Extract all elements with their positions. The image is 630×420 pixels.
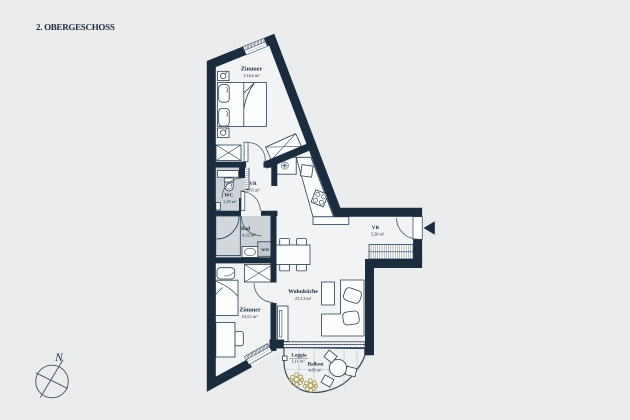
svg-text:4,32 m²: 4,32 m²: [242, 233, 256, 238]
svg-text:1,11 m²: 1,11 m²: [291, 359, 305, 364]
svg-text:N: N: [54, 352, 64, 364]
svg-text:13,64 m²: 13,64 m²: [243, 73, 260, 78]
svg-text:Bad: Bad: [241, 226, 250, 232]
svg-text:10,52 m²: 10,52 m²: [241, 314, 258, 319]
svg-text:25,13 m²: 25,13 m²: [295, 296, 312, 301]
svg-text:Zimmer: Zimmer: [241, 66, 263, 73]
svg-text:2,65 m²: 2,65 m²: [246, 188, 260, 193]
svg-text:Wohnküche: Wohnküche: [288, 288, 318, 295]
svg-text:5,58 m²: 5,58 m²: [371, 232, 385, 237]
svg-text:Zimmer: Zimmer: [239, 307, 261, 314]
svg-text:4,85 m²: 4,85 m²: [308, 368, 322, 373]
svg-text:VR: VR: [249, 181, 257, 187]
svg-text:VR: VR: [372, 225, 380, 231]
svg-text:WM: WM: [261, 247, 269, 252]
svg-text:2. OBERGESCHOSS: 2. OBERGESCHOSS: [36, 22, 115, 32]
svg-text:1,29 m²: 1,29 m²: [223, 199, 237, 204]
svg-text:WC: WC: [224, 193, 233, 199]
